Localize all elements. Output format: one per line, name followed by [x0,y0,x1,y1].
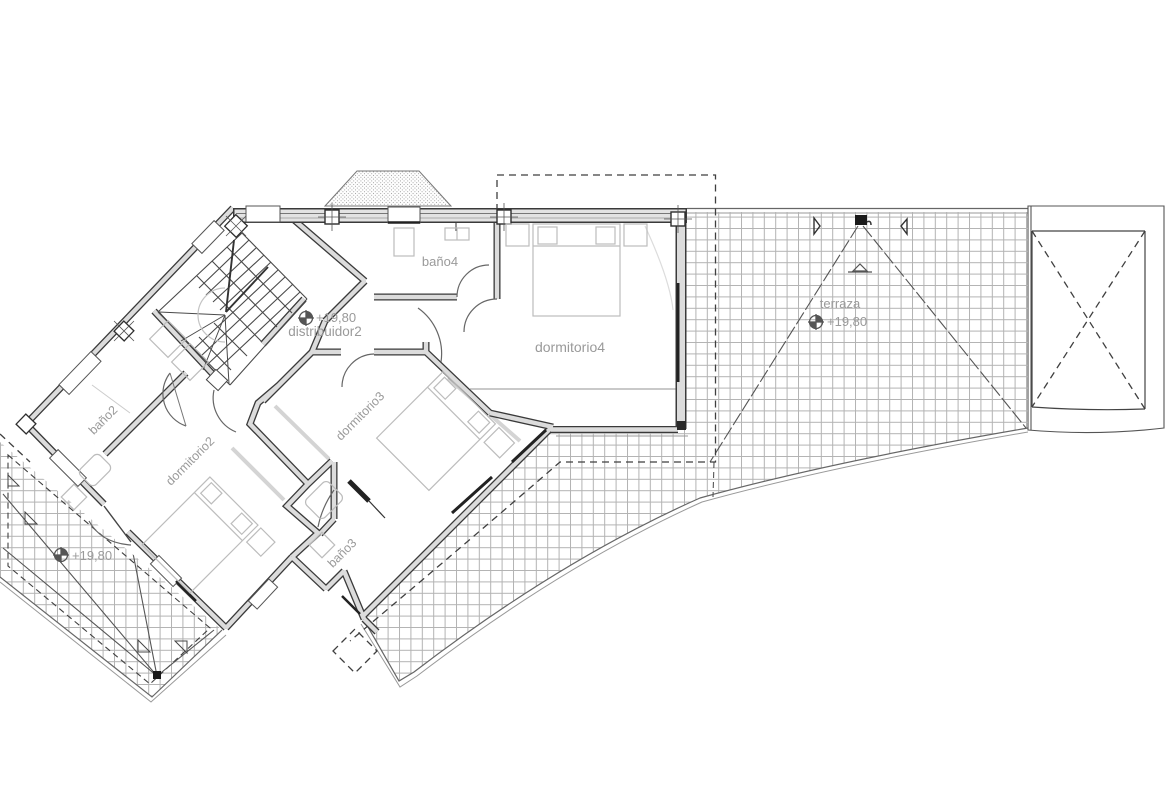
svg-text:terraza: terraza [820,296,861,311]
svg-text:dormitorio4: dormitorio4 [535,339,605,355]
svg-text:+19,80: +19,80 [316,310,356,325]
svg-text:distribuidor2: distribuidor2 [288,324,362,339]
svg-text:baño4: baño4 [422,254,458,269]
svg-text:+19,80: +19,80 [827,314,867,329]
svg-text:+19,80: +19,80 [72,548,112,563]
